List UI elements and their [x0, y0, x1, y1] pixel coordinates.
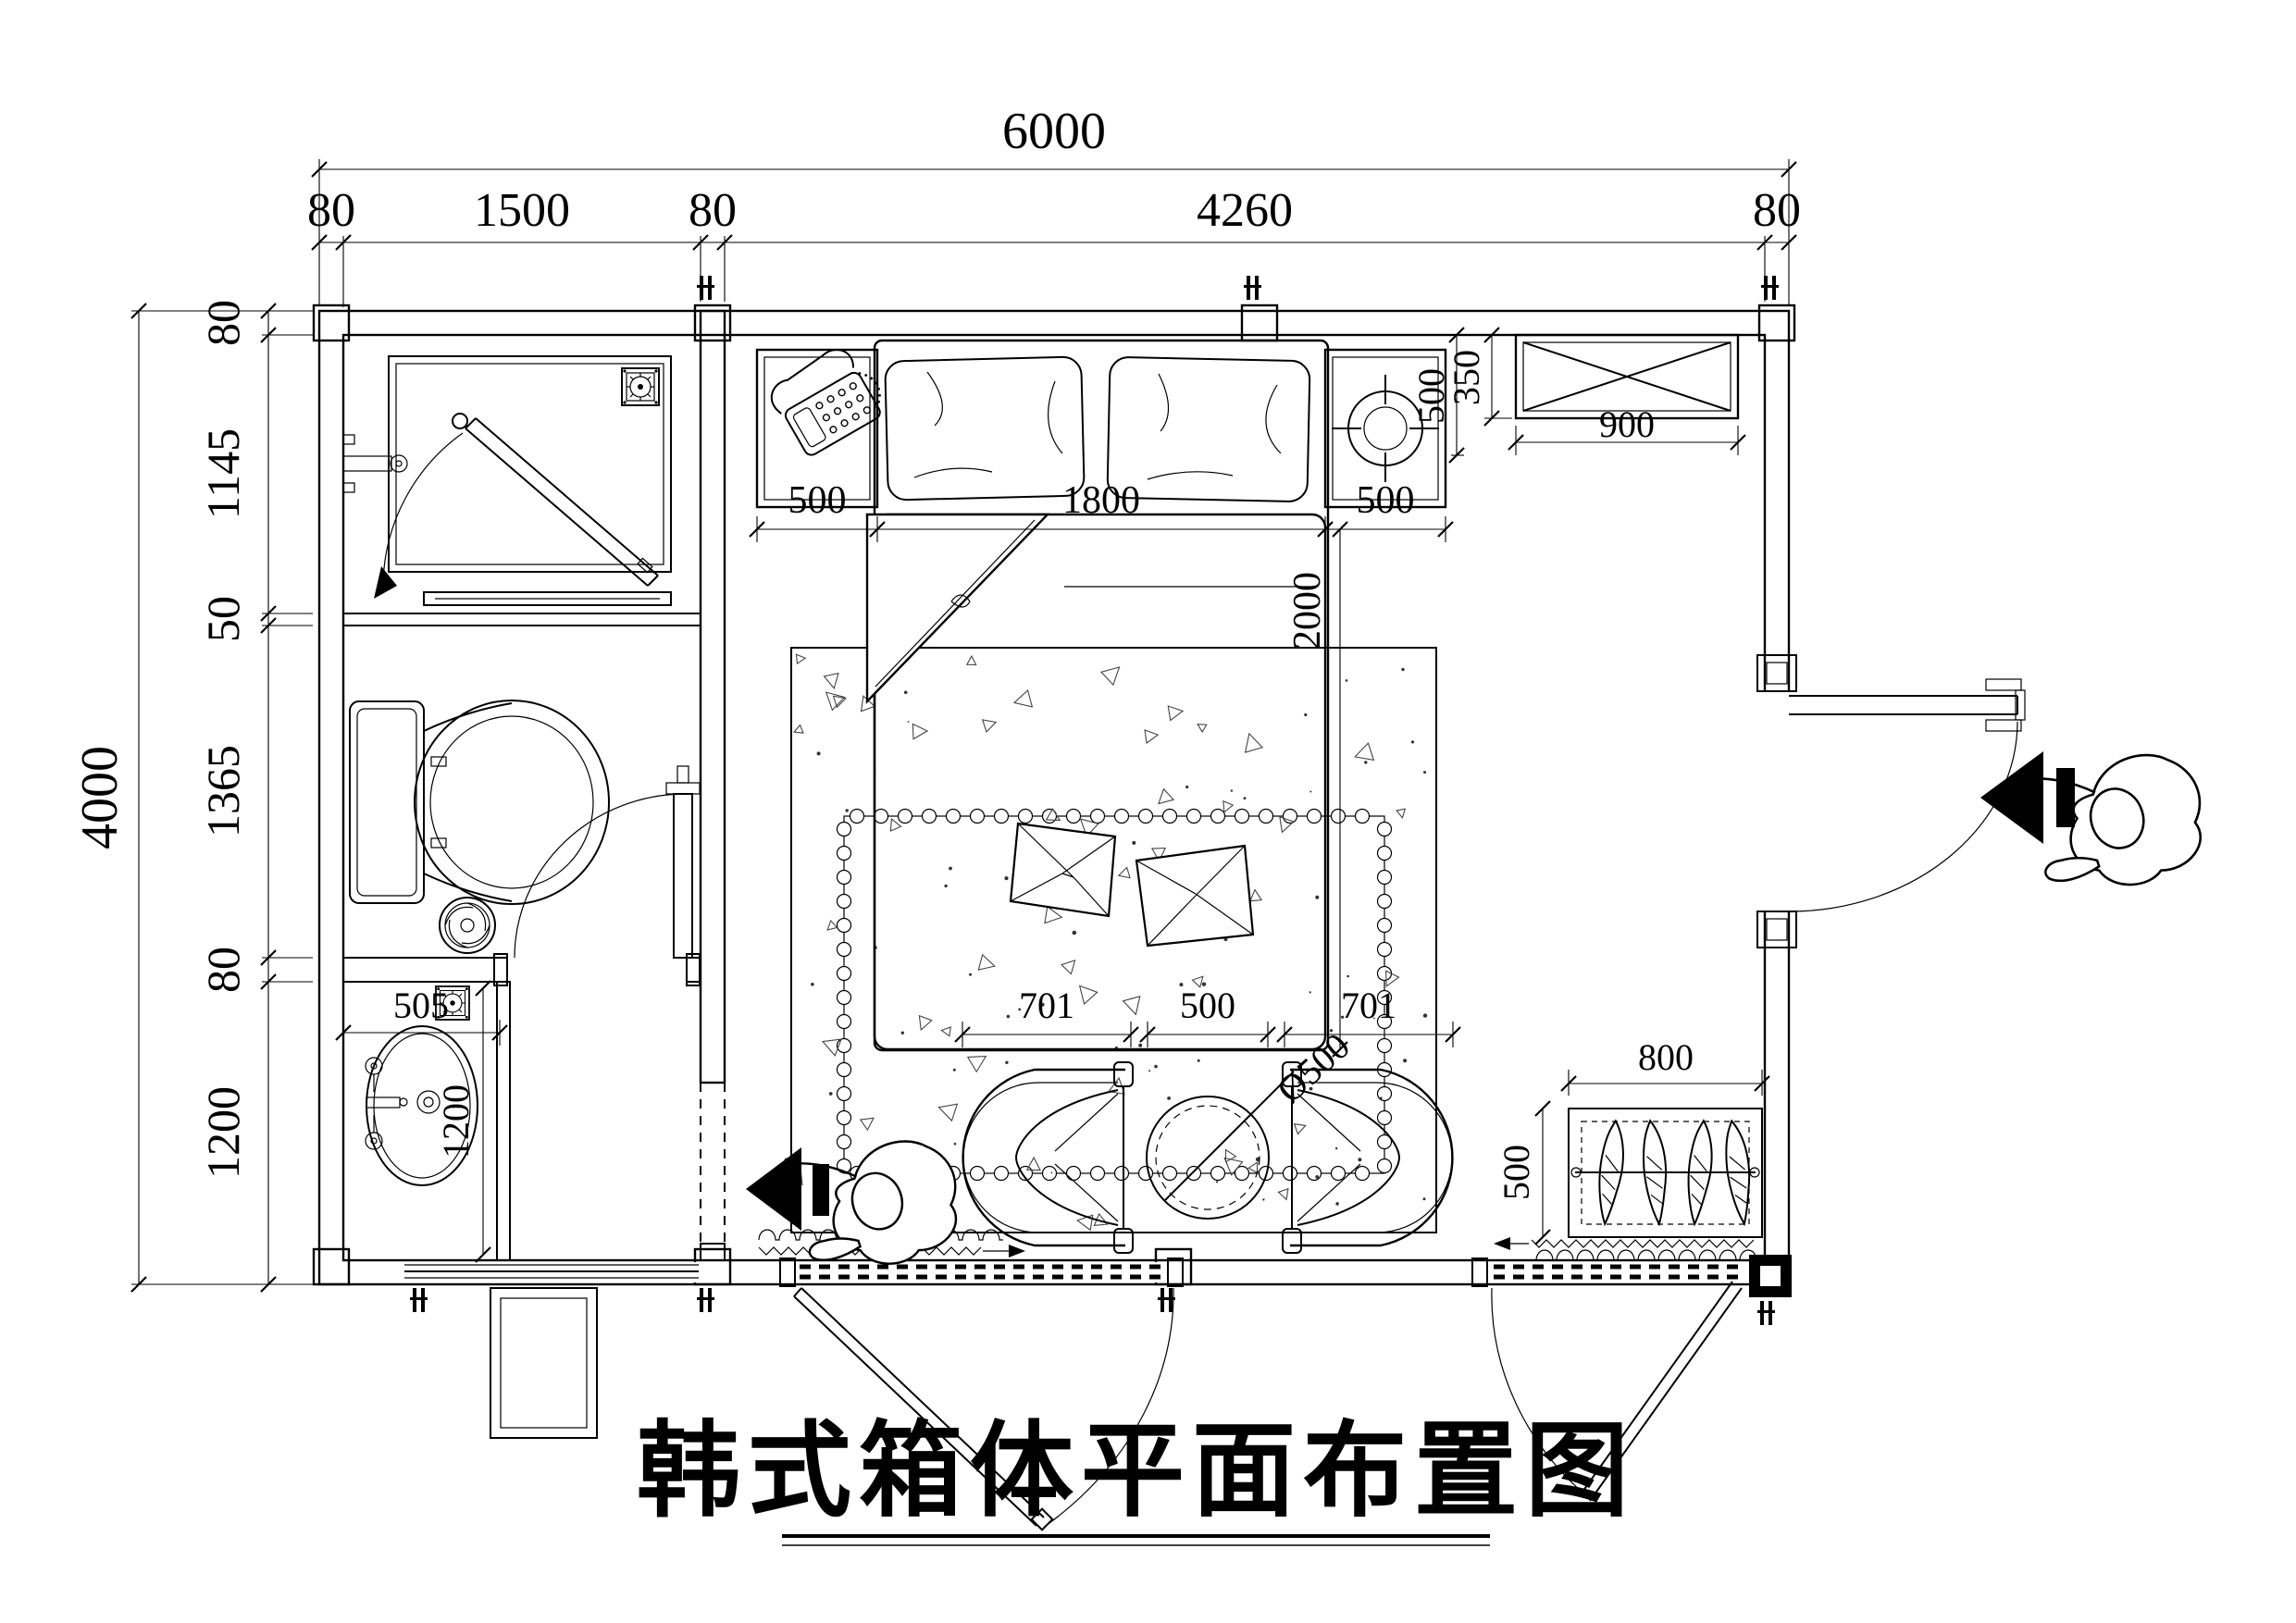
bed: [867, 341, 1328, 1050]
dim-top-seg-3: 4260: [1197, 184, 1293, 237]
toilet-room: [350, 700, 700, 958]
dim-seat-gap: 500: [1180, 985, 1235, 1026]
dim-chair-right: 701: [1341, 985, 1396, 1026]
dim-top-seg-1: 1500: [474, 184, 570, 237]
dim-cabinet-width: 900: [1599, 403, 1655, 445]
curtain-right: [1494, 1237, 1760, 1260]
dim-basin-width: 505: [393, 985, 449, 1026]
title-text: 韩式箱体平面布置图: [637, 1413, 1636, 1529]
duvet: [867, 514, 1325, 1049]
dim-planter-width: 800: [1638, 1036, 1694, 1078]
dim-chair-left: 701: [1019, 985, 1074, 1026]
toilet: [350, 700, 609, 904]
shower-room: [343, 356, 671, 605]
dim-left-seg-0: 80: [197, 300, 249, 346]
dim-bed-width: 1800: [1062, 479, 1140, 522]
pillow-left: [885, 356, 1085, 500]
dim-left-seg-1: 1145: [197, 428, 249, 519]
dim-top-seg-4: 80: [1753, 184, 1801, 237]
shower-door: [374, 414, 671, 605]
planter-box: [1569, 1109, 1762, 1237]
floor-plan: 6000 80 1500 80 4260 80 4000 80 1145 50 …: [0, 0, 2296, 1623]
round-table: [1147, 1072, 1294, 1219]
drawing-title: 韩式箱体平面布置图: [637, 1413, 1636, 1545]
entry-door: [1757, 655, 2025, 948]
cushion-left: [1011, 824, 1115, 916]
shower-mixer: [343, 435, 407, 492]
window-bottom-left: [404, 1262, 699, 1282]
walls: [314, 276, 1794, 1312]
floor-drain-icon: [622, 368, 659, 405]
wall-posts: [314, 276, 1794, 1312]
cushion-right: [1136, 846, 1253, 946]
dim-planter-depth: 500: [1496, 1145, 1537, 1200]
dim-top-seg-0: 80: [307, 184, 355, 237]
bathroom-door: [515, 766, 700, 958]
dim-left-seg-5: 1200: [197, 1086, 249, 1179]
person-figure-right: [2017, 755, 2201, 885]
dim-top-total: 6000: [1002, 103, 1106, 160]
dimension-lines: [131, 159, 1796, 1292]
dim-left-seg-4: 80: [197, 947, 249, 993]
step-platform: [490, 1288, 597, 1438]
dim-bed-length: 2000: [1286, 572, 1329, 650]
dim-top-seg-2: 80: [689, 184, 737, 237]
dimension-labels: 6000 80 1500 80 4260 80 4000 80 1145 50 …: [71, 103, 1801, 1200]
walk-arrow-icon: [746, 1147, 829, 1231]
dim-bed-left: 500: [788, 479, 847, 522]
dim-cabinet-depth: 350: [1446, 350, 1487, 405]
corner-column: [1749, 1255, 1792, 1325]
floor-drain-swirl: [440, 898, 495, 953]
person-figure-bottom: [783, 1141, 956, 1263]
dim-bed-right: 500: [1357, 479, 1415, 522]
dim-basin-length: 1200: [435, 1084, 477, 1158]
dim-left-total: 4000: [71, 746, 129, 849]
drawing-sheet: 6000 80 1500 80 4260 80 4000 80 1145 50 …: [0, 0, 2296, 1623]
dim-left-seg-3: 1365: [197, 745, 249, 837]
dim-left-seg-2: 50: [197, 596, 249, 642]
entry-arrow-icon: [1980, 751, 2075, 844]
